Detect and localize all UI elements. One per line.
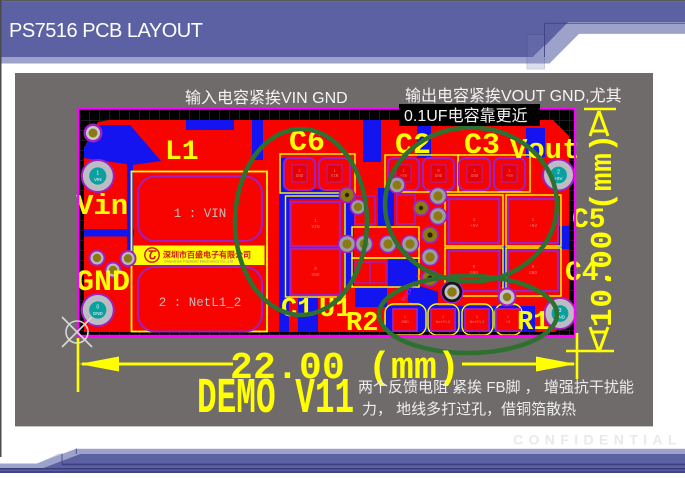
svg-text:1: 1 — [473, 217, 476, 223]
svg-text:2 : NetL1_2: 2 : NetL1_2 — [159, 296, 242, 310]
svg-text:0.1UF电容靠更近: 0.1UF电容靠更近 — [404, 107, 528, 125]
svg-text:GND: GND — [401, 321, 409, 325]
svg-text:+5: +5 — [506, 321, 511, 325]
svg-text:GND: GND — [296, 175, 304, 179]
svg-text:VIN: VIN — [94, 177, 102, 182]
svg-text:1: 1 — [314, 218, 317, 224]
svg-text:+5V: +5V — [470, 223, 478, 229]
svg-text:GND: GND — [76, 266, 130, 300]
svg-text:NetFL2: NetFL2 — [436, 321, 451, 325]
svg-text:R2: R2 — [346, 309, 378, 339]
svg-text:1: 1 — [532, 217, 535, 223]
svg-text:+5V: +5V — [529, 223, 537, 229]
svg-text:L1: L1 — [165, 137, 199, 168]
svg-text:1 : VIN: 1 : VIN — [174, 207, 227, 221]
svg-text:Shenzhen Packsun Electronics C: Shenzhen Packsun Electronics Co.,Ltd — [164, 259, 233, 264]
svg-text:0: 0 — [473, 264, 476, 270]
svg-text:GND: GND — [311, 272, 319, 278]
svg-text:力， 地线多打过孔，借铜箔散热: 力， 地线多打过孔，借铜箔散热 — [362, 401, 576, 418]
svg-text:0: 0 — [96, 305, 99, 311]
svg-text:1: 1 — [96, 171, 99, 177]
svg-text:CONFIDENTIAL: CONFIDENTIAL — [513, 432, 682, 448]
svg-text:VIN: VIN — [331, 175, 339, 179]
svg-text:输出电容紧挨VOUT GND,尤其: 输出电容紧挨VOUT GND,尤其 — [405, 87, 622, 105]
svg-text:+5V: +5V — [506, 175, 514, 179]
svg-text:+5V: +5V — [554, 176, 562, 181]
svg-text:2: 2 — [557, 170, 560, 176]
svg-text:两个反馈电阻 紧挨 FB脚 ， 增强抗干扰能: 两个反馈电阻 紧挨 FB脚 ， 增强抗干扰能 — [358, 379, 634, 396]
svg-text:Vin: Vin — [76, 190, 128, 223]
svg-text:GND: GND — [529, 270, 537, 276]
svg-text:GND: GND — [471, 175, 479, 179]
svg-text:10.00 (mm): 10.00 (mm) — [586, 133, 621, 327]
svg-text:C1: C1 — [281, 295, 313, 325]
svg-text:NetFL2: NetFL2 — [470, 321, 485, 325]
svg-text:C3: C3 — [464, 129, 500, 163]
svg-text:GND: GND — [93, 311, 104, 316]
svg-text:输入电容紧挨VIN GND: 输入电容紧挨VIN GND — [185, 89, 348, 107]
svg-text:0: 0 — [314, 266, 317, 272]
svg-text:GND: GND — [435, 175, 443, 179]
svg-text:DEMO V11: DEMO V11 — [197, 371, 354, 428]
svg-text:VIN: VIN — [311, 224, 319, 230]
svg-text:PS7516 PCB LAYOUT: PS7516 PCB LAYOUT — [9, 20, 203, 42]
svg-text:0: 0 — [532, 264, 535, 270]
